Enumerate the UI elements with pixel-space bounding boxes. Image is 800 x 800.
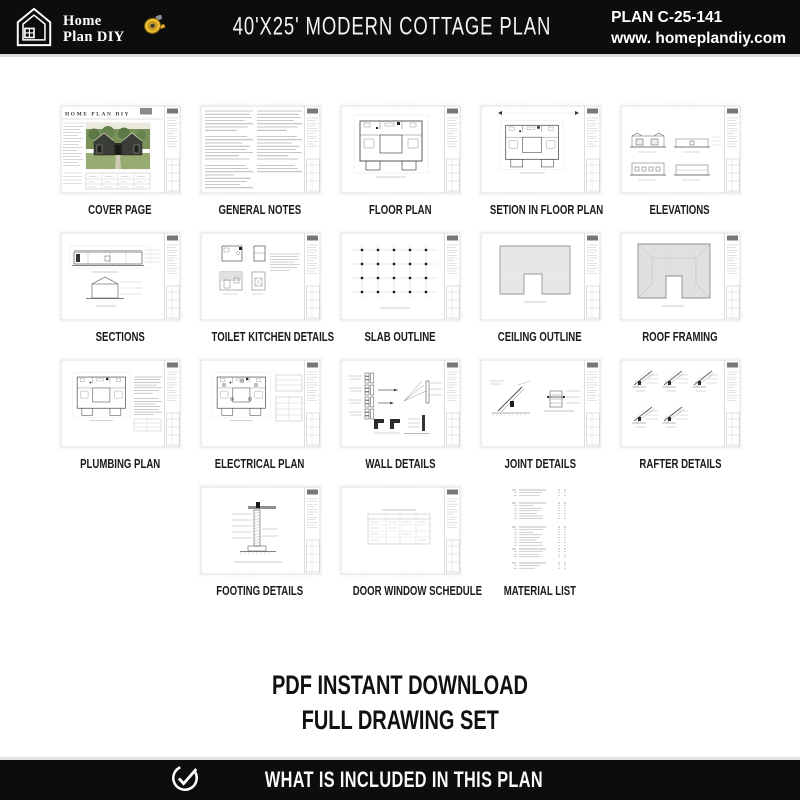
plan-code: PLAN C-25-141 bbox=[611, 8, 786, 29]
sheet-thumbnail-plumbing bbox=[58, 357, 183, 450]
sheet-thumbnail-sections bbox=[58, 230, 183, 323]
sheet-thumbnail-materials bbox=[506, 484, 574, 577]
check-circle-icon bbox=[170, 763, 200, 798]
sheet-row-4: FOOTING DETAILSDOOR WINDOW SCHEDULEMATER… bbox=[0, 484, 800, 598]
sheet-thumbnail-schedule bbox=[338, 484, 463, 577]
sheet-label-row: ROOF FRAMING bbox=[610, 329, 750, 344]
brand-line2: Plan DIY bbox=[63, 29, 125, 45]
sheet-thumbnail-footing bbox=[198, 484, 323, 577]
sheet-label-row: SLAB OUTLINE bbox=[330, 329, 470, 344]
sheet-label-row: WALL DETAILS bbox=[330, 456, 470, 471]
download-note: PDF INSTANT DOWNLOAD FULL DRAWING SET bbox=[0, 668, 800, 738]
sheet-label-row: PLUMBING PLAN bbox=[50, 456, 190, 471]
sheet-label: ELECTRICAL PLAN bbox=[215, 456, 305, 471]
sheet-thumbnail-cover: HOME PLAN DIY bbox=[58, 103, 183, 196]
sheet-thumbnail-rafters bbox=[618, 357, 743, 450]
sheet-row-1: HOME PLAN DIYCOVER PAGEGENERAL NOTESFLOO… bbox=[0, 103, 800, 217]
sheet-label: WALL DETAILS bbox=[365, 456, 435, 471]
sheet-label: TOILET KITCHEN DETAILS bbox=[212, 329, 335, 344]
plan-title: 40'X25' MODERN COTTAGE PLAN bbox=[233, 13, 552, 42]
sheet-label: CEILING OUTLINE bbox=[498, 329, 582, 344]
sheet-item: ELECTRICAL PLAN bbox=[190, 357, 330, 471]
sheet-item: JOINT DETAILS bbox=[470, 357, 610, 471]
tape-measure-icon bbox=[143, 13, 167, 42]
sheet-row-2: SECTIONSTOILET KITCHEN DETAILSSLAB OUTLI… bbox=[0, 230, 800, 344]
sheet-label: DOOR WINDOW SCHEDULE bbox=[353, 583, 482, 598]
house-outline-icon bbox=[14, 6, 54, 53]
sheet-thumbnail-floorplan2 bbox=[478, 103, 603, 196]
sheet-label-row: SETION IN FLOOR PLAN bbox=[470, 202, 610, 217]
sheet-item: SETION IN FLOOR PLAN bbox=[470, 103, 610, 217]
brand-logo: Home Plan DIY bbox=[14, 6, 125, 53]
sheet-thumbnail-joints bbox=[478, 357, 603, 450]
sheet-item: SECTIONS bbox=[50, 230, 190, 344]
sheet-thumbnail-floorplan bbox=[338, 103, 463, 196]
sheet-label-row: FOOTING DETAILS bbox=[190, 583, 330, 598]
sheet-item: FLOOR PLAN bbox=[330, 103, 470, 217]
sheet-thumbnail-notes bbox=[198, 103, 323, 196]
sheet-label: FLOOR PLAN bbox=[369, 202, 432, 217]
sheet-thumbnail-roof bbox=[618, 230, 743, 323]
sheet-thumbnail-ceiling bbox=[478, 230, 603, 323]
sheet-item: PLUMBING PLAN bbox=[50, 357, 190, 471]
sheet-item: MATERIAL LIST bbox=[470, 484, 610, 598]
sheet-label-row: MATERIAL LIST bbox=[470, 583, 610, 598]
sheet-thumbnail-elevations bbox=[618, 103, 743, 196]
sheet-item: ROOF FRAMING bbox=[610, 230, 750, 344]
sheet-label: SECTIONS bbox=[95, 329, 144, 344]
sheet-label: SLAB OUTLINE bbox=[364, 329, 435, 344]
sheet-item: HOME PLAN DIYCOVER PAGE bbox=[50, 103, 190, 217]
sheet-thumbnail-slab bbox=[338, 230, 463, 323]
sheet-item: GENERAL NOTES bbox=[190, 103, 330, 217]
sheet-item: WALL DETAILS bbox=[330, 357, 470, 471]
sheet-item: TOILET KITCHEN DETAILS bbox=[190, 230, 330, 344]
brand-line1: Home bbox=[63, 13, 102, 29]
sheet-item: RAFTER DETAILS bbox=[610, 357, 750, 471]
sheet-label: PLUMBING PLAN bbox=[80, 456, 160, 471]
sheet-row-3: PLUMBING PLANELECTRICAL PLANWALL DETAILS… bbox=[0, 357, 800, 471]
sheet-label-row: SECTIONS bbox=[50, 329, 190, 344]
sheet-item: SLAB OUTLINE bbox=[330, 230, 470, 344]
sheet-label: MATERIAL LIST bbox=[504, 583, 576, 598]
sheet-label: GENERAL NOTES bbox=[219, 202, 302, 217]
download-line2: FULL DRAWING SET bbox=[301, 703, 498, 738]
included-section-label: WHAT IS INCLUDED IN THIS PLAN bbox=[265, 767, 543, 793]
sheet-thumbnail-walls bbox=[338, 357, 463, 450]
sheet-label: RAFTER DETAILS bbox=[639, 456, 721, 471]
sheet-item: FOOTING DETAILS bbox=[190, 484, 330, 598]
top-header-bar: Home Plan DIY 40'X25' MODERN COTTAGE PLA… bbox=[0, 0, 800, 57]
sheet-item: CEILING OUTLINE bbox=[470, 230, 610, 344]
sheet-label-row: RAFTER DETAILS bbox=[610, 456, 750, 471]
brand-name: Home Plan DIY bbox=[63, 14, 125, 44]
download-line1: PDF INSTANT DOWNLOAD bbox=[272, 668, 528, 703]
sheet-label-row: DOOR WINDOW SCHEDULE bbox=[330, 583, 470, 598]
sheet-label-row: COVER PAGE bbox=[50, 202, 190, 217]
sheet-thumbnail-toilet bbox=[198, 230, 323, 323]
plan-meta: PLAN C-25-141 www. homeplandiy.com bbox=[611, 8, 786, 50]
sheet-label-row: CEILING OUTLINE bbox=[470, 329, 610, 344]
svg-text:HOME PLAN DIY: HOME PLAN DIY bbox=[65, 112, 130, 118]
sheet-label-row: TOILET KITCHEN DETAILS bbox=[190, 329, 330, 344]
sheet-label: ELEVATIONS bbox=[650, 202, 710, 217]
sheet-label-row: ELEVATIONS bbox=[610, 202, 750, 217]
included-section-bar: WHAT IS INCLUDED IN THIS PLAN bbox=[0, 757, 800, 800]
plan-title-group: 40'X25' MODERN COTTAGE PLAN bbox=[143, 13, 607, 42]
sheet-label: ROOF FRAMING bbox=[642, 329, 717, 344]
sheet-label-row: FLOOR PLAN bbox=[330, 202, 470, 217]
sheet-label: SETION IN FLOOR PLAN bbox=[490, 202, 603, 217]
sheet-label: FOOTING DETAILS bbox=[217, 583, 304, 598]
website-url: www. homeplandiy.com bbox=[611, 29, 786, 50]
sheets-grid: HOME PLAN DIYCOVER PAGEGENERAL NOTESFLOO… bbox=[0, 103, 800, 611]
sheet-label: COVER PAGE bbox=[88, 202, 151, 217]
sheet-label-row: JOINT DETAILS bbox=[470, 456, 610, 471]
sheet-label-row: GENERAL NOTES bbox=[190, 202, 330, 217]
sheet-thumbnail-electrical bbox=[198, 357, 323, 450]
sheet-label-row: ELECTRICAL PLAN bbox=[190, 456, 330, 471]
sheet-item: DOOR WINDOW SCHEDULE bbox=[330, 484, 470, 598]
sheet-label: JOINT DETAILS bbox=[504, 456, 575, 471]
sheet-item: ELEVATIONS bbox=[610, 103, 750, 217]
